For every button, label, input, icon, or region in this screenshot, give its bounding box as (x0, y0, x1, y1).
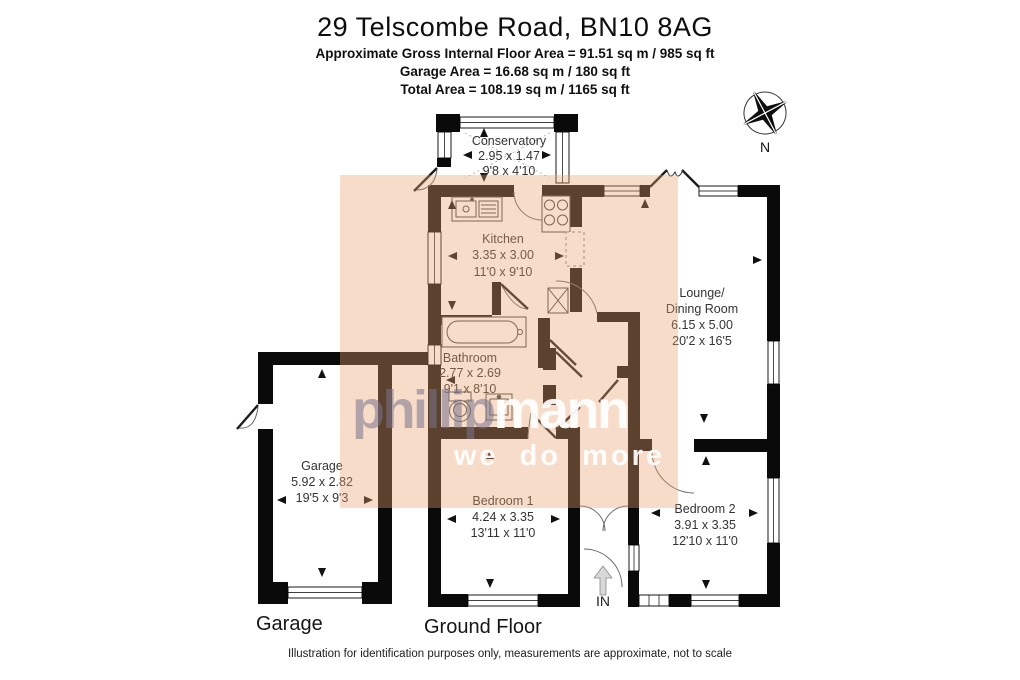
garage-metric: 5.92 x 2.82 (291, 475, 353, 489)
conservatory-metric: 2.95 x 1.47 (478, 149, 540, 163)
floorplan-drawing: N Conservatory 2.95 x 1.47 9'8 x 4'10 Ki… (0, 0, 1020, 680)
garage-imperial: 19'5 x 9'3 (296, 491, 349, 505)
lounge-name-1: Lounge/ (679, 286, 725, 300)
bathroom-name: Bathroom (443, 351, 497, 365)
compass-north-label: N (760, 139, 770, 155)
disclaimer-text: Illustration for identification purposes… (0, 648, 1020, 660)
entrance-label: IN (596, 593, 610, 609)
conservatory-imperial: 9'8 x 4'10 (483, 164, 536, 178)
garage-caption: Garage (256, 613, 323, 636)
bedroom2-imperial: 12'10 x 11'0 (672, 534, 738, 548)
bathtub-icon (442, 317, 526, 347)
conservatory-name: Conservatory (472, 134, 547, 148)
toilet-icon (449, 392, 471, 422)
ground-floor-caption: Ground Floor (424, 616, 542, 639)
bedroom1-imperial: 13'11 x 11'0 (471, 526, 536, 540)
cupboard-icon (548, 288, 568, 313)
kitchen-sink-icon (452, 197, 502, 221)
floorplan-page: 29 Telscombe Road, BN10 8AG Approximate … (0, 0, 1020, 680)
bathroom-metric: 2.77 x 2.69 (439, 366, 501, 380)
bedroom2-name: Bedroom 2 (674, 502, 735, 516)
room-labels: Conservatory 2.95 x 1.47 9'8 x 4'10 Kitc… (291, 134, 738, 609)
lounge-metric: 6.15 x 5.00 (671, 318, 733, 332)
porch-arch-mark (667, 170, 683, 176)
kitchen-metric: 3.35 x 3.00 (472, 248, 534, 262)
lounge-imperial: 20'2 x 16'5 (672, 334, 732, 348)
kitchen-imperial: 11'0 x 9'10 (474, 265, 533, 279)
kitchen-name: Kitchen (482, 232, 524, 246)
basin-icon (486, 394, 512, 420)
compass-icon: N (728, 76, 801, 155)
bathroom-imperial: 9'1 x 8'10 (444, 382, 497, 396)
garage-name: Garage (301, 459, 343, 473)
lounge-name-2: Dining Room (666, 302, 738, 316)
larder-icon (566, 232, 584, 266)
bedroom1-name: Bedroom 1 (472, 494, 533, 508)
entrance-arrow-icon (594, 566, 612, 595)
bedroom1-metric: 4.24 x 3.35 (472, 510, 534, 524)
stove-icon (542, 196, 570, 232)
bedroom2-metric: 3.91 x 3.35 (674, 518, 736, 532)
